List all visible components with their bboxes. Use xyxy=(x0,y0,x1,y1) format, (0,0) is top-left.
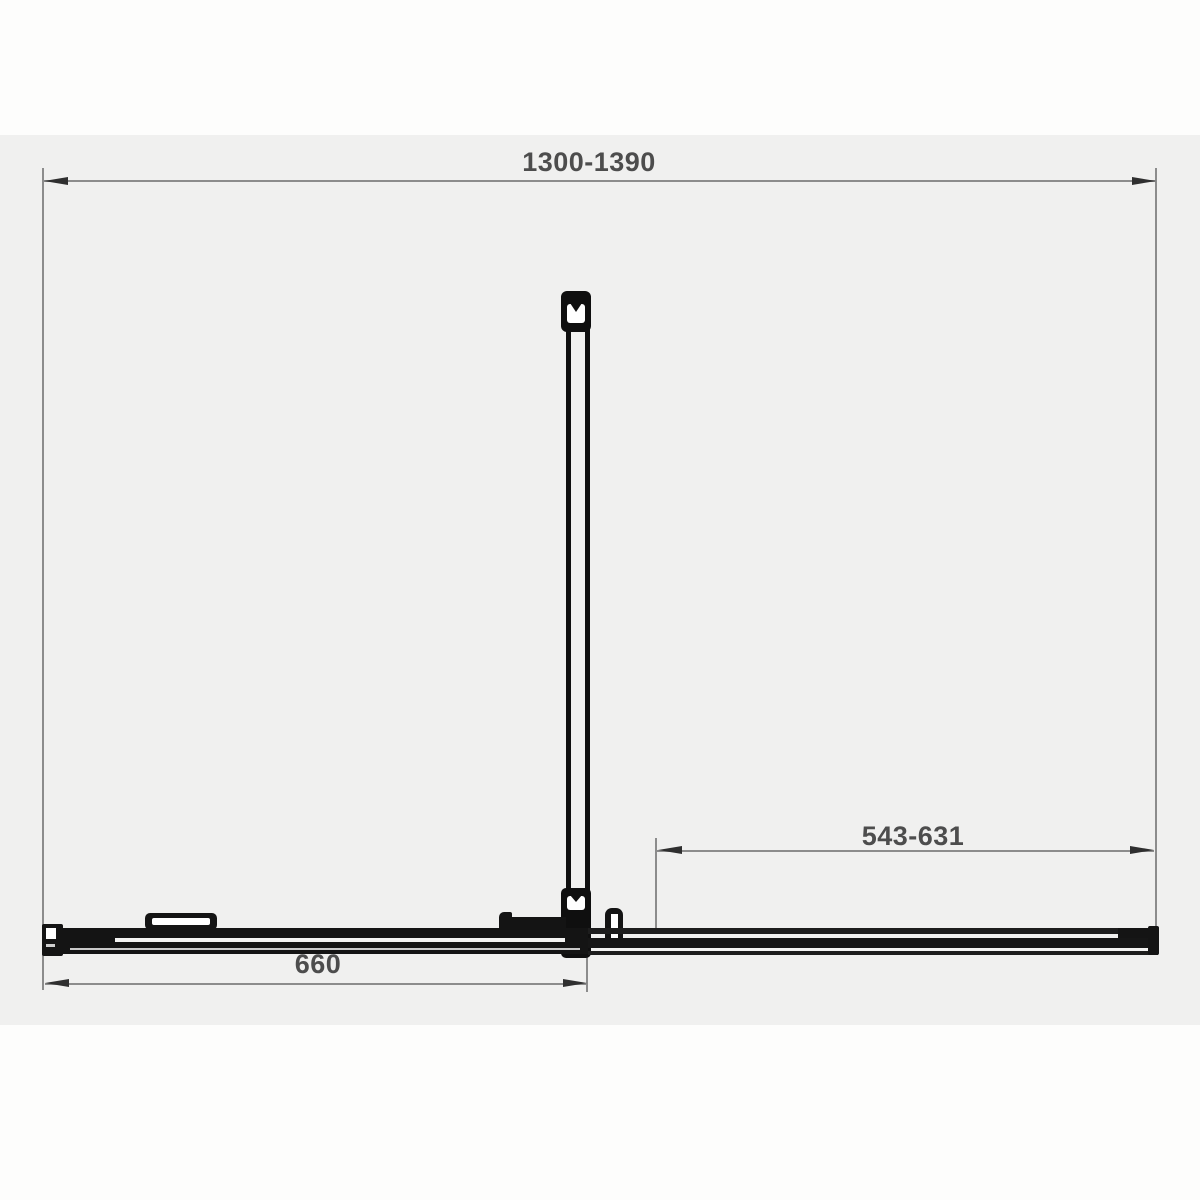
drawing-field xyxy=(0,135,1200,1025)
wall-line-right xyxy=(1155,168,1157,930)
bracket-notch xyxy=(567,304,585,323)
plan-diagram: 1300-1390 543-631 660 xyxy=(0,0,1200,1200)
glass-screen-edge-right xyxy=(585,326,590,892)
door-rail-top-strip xyxy=(588,928,1155,934)
support-bracket-flange xyxy=(499,917,566,931)
door-opening-label: 543-631 xyxy=(763,821,1063,852)
door-rail-endcap xyxy=(1148,926,1159,955)
fixed-panel-dim-line xyxy=(45,983,587,985)
wall-bracket-groove xyxy=(46,944,55,947)
clamp-notch xyxy=(567,896,585,910)
fixed-profile-groove-1 xyxy=(115,938,565,942)
door-handle xyxy=(145,913,217,930)
door-handle-slot xyxy=(152,918,210,925)
overall-width-label: 1300-1390 xyxy=(439,147,739,178)
wall-mount-bracket xyxy=(42,924,63,956)
overall-width-dim-line xyxy=(44,180,1156,182)
glass-top-wall-bracket xyxy=(561,291,591,332)
wall-bracket-notch xyxy=(46,928,56,939)
door-rail-bottom-strip xyxy=(588,951,1158,955)
fixed-profile-groove-2 xyxy=(70,948,580,950)
fixed-panel-extension-line xyxy=(586,957,588,992)
door-rail-mid-strip xyxy=(588,938,1158,948)
glass-screen-edge-left xyxy=(566,326,571,892)
wall-line-left xyxy=(42,168,44,990)
